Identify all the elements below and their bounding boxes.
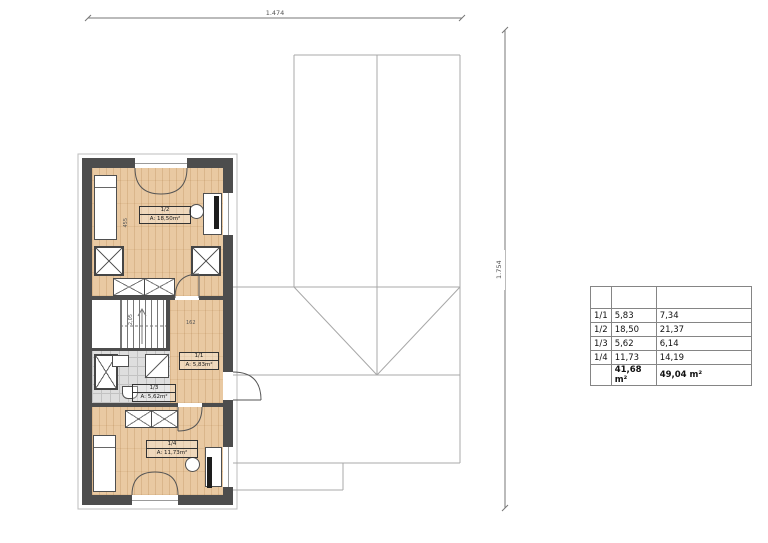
room-label-bedroom-bottom: 1/4 A: 11,73m² xyxy=(146,440,198,458)
door-swing-bottom-room xyxy=(178,407,202,431)
floor-plan: 1/2 A: 18,50m² 1/1 A: 5,83m² 1/3 A: 5,62… xyxy=(82,158,233,505)
annotation-room-depth: 455 xyxy=(123,218,129,228)
table-header-cell xyxy=(656,287,751,309)
annotation-hall-width: 162 xyxy=(186,320,196,326)
dimension-right-label: 1.754 xyxy=(495,250,505,290)
room-id: 1/3 xyxy=(133,385,175,393)
room-id-cell: 1/1 xyxy=(591,309,612,323)
table-row: 1/2 18,50 21,37 xyxy=(591,323,752,337)
table-total-row: 41,68 m² 49,04 m² xyxy=(591,365,752,386)
total-empty-cell xyxy=(591,365,612,386)
table-row: 1/4 11,73 14,19 xyxy=(591,351,752,365)
table-header-cell xyxy=(591,287,612,309)
room-area: A: 18,50m² xyxy=(140,215,190,223)
room-id-cell: 1/2 xyxy=(591,323,612,337)
door-swing-top-room xyxy=(175,274,199,298)
blueprint-canvas: 1.474 1.754 xyxy=(0,0,768,543)
table-row: 1/3 5,62 6,14 xyxy=(591,337,752,351)
area-table: 1/1 5,83 7,34 1/2 18,50 21,37 1/3 5,62 6… xyxy=(590,286,752,386)
room-label-hall: 1/1 A: 5,83m² xyxy=(179,352,219,370)
room-label-bathroom: 1/3 A: 5,62m² xyxy=(132,384,176,402)
gross-area-cell: 6,14 xyxy=(656,337,751,351)
room-id-cell: 1/3 xyxy=(591,337,612,351)
window-top-swing xyxy=(135,168,187,194)
floor-area-cell: 5,62 xyxy=(611,337,656,351)
gross-area-cell: 21,37 xyxy=(656,323,751,337)
annotation-stair-headroom: 2,05 xyxy=(128,314,134,325)
gross-area-cell: 14,19 xyxy=(656,351,751,365)
total-gross-area-cell: 49,04 m² xyxy=(656,365,751,386)
window-bottom-swing xyxy=(132,472,178,495)
room-id-cell: 1/4 xyxy=(591,351,612,365)
room-label-bedroom-top: 1/2 A: 18,50m² xyxy=(139,206,191,224)
total-floor-area-cell: 41,68 m² xyxy=(611,365,656,386)
table-header-cell xyxy=(611,287,656,309)
room-area: A: 11,73m² xyxy=(147,449,197,457)
gross-area-cell: 7,34 xyxy=(656,309,751,323)
table-row: 1/1 5,83 7,34 xyxy=(591,309,752,323)
table-header-row xyxy=(591,287,752,309)
shower-diagonal xyxy=(145,354,169,378)
floor-area-cell: 18,50 xyxy=(611,323,656,337)
floor-area-cell: 11,73 xyxy=(611,351,656,365)
floor-area-cell: 5,83 xyxy=(611,309,656,323)
room-area: A: 5,83m² xyxy=(180,361,218,369)
room-id: 1/2 xyxy=(140,207,190,215)
room-id: 1/4 xyxy=(147,441,197,449)
roof-step-outline xyxy=(233,463,343,490)
room-id: 1/1 xyxy=(180,353,218,361)
dimension-top-label: 1.474 xyxy=(248,9,302,17)
room-area: A: 5,62m² xyxy=(133,393,175,401)
